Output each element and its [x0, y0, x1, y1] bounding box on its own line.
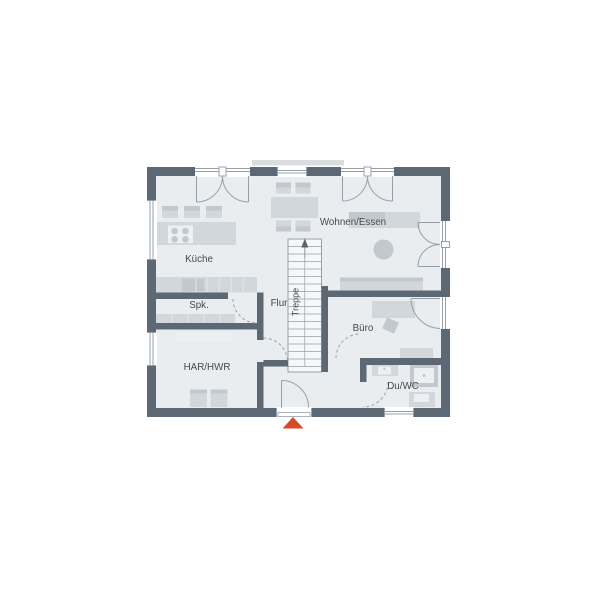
wall-hall-west-upper	[257, 293, 264, 341]
door-knob	[219, 167, 226, 176]
pantry-shelf	[156, 314, 235, 323]
burner	[171, 236, 178, 243]
wall-hall-west-lower	[257, 362, 264, 408]
office-cabinet	[400, 348, 433, 358]
room-label-du-wc: Du/WC	[387, 381, 419, 392]
window-utility-left	[146, 332, 157, 366]
dryer-top	[211, 390, 228, 394]
floor-plan-page: Küche Spk. Flur Treppe Wohnen/Essen Büro…	[0, 0, 600, 600]
sofa-back	[340, 278, 423, 282]
door-knob	[442, 242, 450, 248]
room-label-buero: Büro	[353, 323, 374, 334]
exterior-wall-right	[441, 167, 450, 417]
room-label-har-hwr: HAR/HWR	[184, 362, 231, 373]
window-kitchen-left	[146, 200, 157, 260]
wall-bath-north	[360, 358, 441, 365]
room-label-spk: Spk.	[189, 300, 209, 311]
burner	[182, 236, 189, 243]
wall-bath-west	[360, 358, 367, 382]
burner	[182, 228, 189, 235]
floor-plan: Küche Spk. Flur Treppe Wohnen/Essen Büro…	[0, 0, 600, 600]
desk	[372, 301, 415, 318]
pouf	[374, 240, 394, 260]
room-label-flur: Flur	[271, 298, 289, 309]
room-label-treppe: Treppe	[291, 288, 301, 316]
bar-stools	[162, 206, 222, 218]
utility-shelf	[176, 332, 233, 342]
drain	[423, 374, 426, 377]
faucet	[383, 368, 385, 370]
room-label-kueche: Küche	[185, 254, 213, 265]
wc-lid	[414, 394, 429, 402]
wall-hall-stub	[264, 360, 289, 367]
wall-kitchen-pantry	[156, 293, 228, 300]
balcony-sill	[252, 160, 344, 166]
appliance	[197, 279, 204, 291]
burner	[171, 228, 178, 235]
entrance-arrow	[283, 417, 304, 429]
washer-top	[190, 390, 207, 394]
wall-living-office	[322, 291, 442, 298]
wall-stair-east	[322, 286, 329, 372]
room-label-wohnen-essen: Wohnen/Essen	[320, 217, 386, 228]
door-knob	[364, 167, 371, 176]
wall-pantry-utility	[156, 323, 264, 330]
window-dining-top	[277, 166, 307, 177]
sink	[378, 367, 391, 375]
window-bath-bottom	[384, 407, 414, 418]
oven	[182, 279, 195, 292]
threshold	[278, 413, 310, 417]
dining-table	[271, 197, 318, 218]
